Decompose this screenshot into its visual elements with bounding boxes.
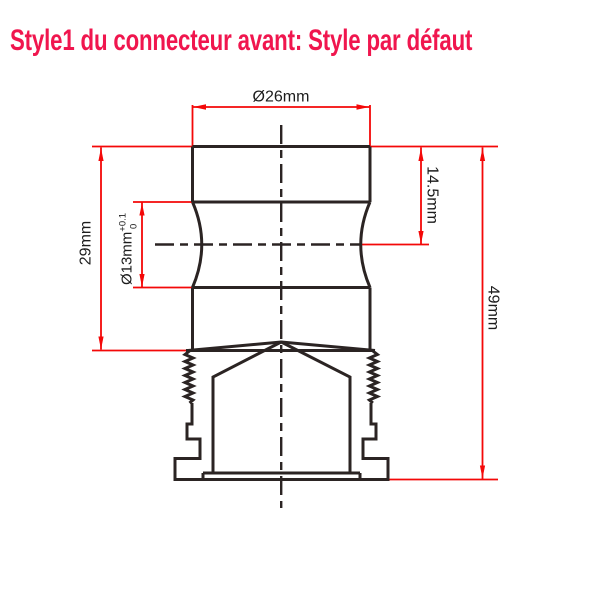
- right-thread-zigzag: [369, 351, 377, 403]
- arrow-left-icon: [193, 104, 206, 109]
- technical-drawing: Ø26mm 29mm Ø13mm+0.10 14.5mm 49mm: [0, 0, 600, 600]
- arrow-down-icon: [480, 466, 485, 479]
- label-14-5mm: 14.5mm: [424, 166, 441, 224]
- arrow-up-icon: [98, 148, 103, 161]
- label-26mm: Ø26mm: [253, 89, 310, 106]
- dim-29mm: [92, 148, 188, 351]
- label-29mm: 29mm: [78, 221, 95, 265]
- left-thread-zigzag: [185, 351, 193, 403]
- dim-49mm: [389, 148, 498, 480]
- label-13mm: Ø13mm+0.10: [118, 213, 140, 285]
- centerlines: [155, 125, 362, 508]
- arrow-up-icon: [139, 203, 144, 216]
- dim-14-5mm: [362, 148, 429, 245]
- arrow-right-icon: [357, 104, 370, 109]
- arrow-down-icon: [139, 274, 144, 287]
- label-13mm-tol-upper: +0.1: [118, 213, 129, 232]
- arrow-up-icon: [418, 148, 423, 161]
- label-13mm-tol-lower: 0: [129, 224, 140, 229]
- dimension-lines: [92, 104, 498, 479]
- arrow-down-icon: [418, 231, 423, 244]
- label-13mm-value: Ø13mm: [119, 232, 136, 285]
- arrow-up-icon: [480, 148, 485, 161]
- arrow-down-icon: [98, 337, 103, 350]
- label-49mm: 49mm: [485, 286, 502, 330]
